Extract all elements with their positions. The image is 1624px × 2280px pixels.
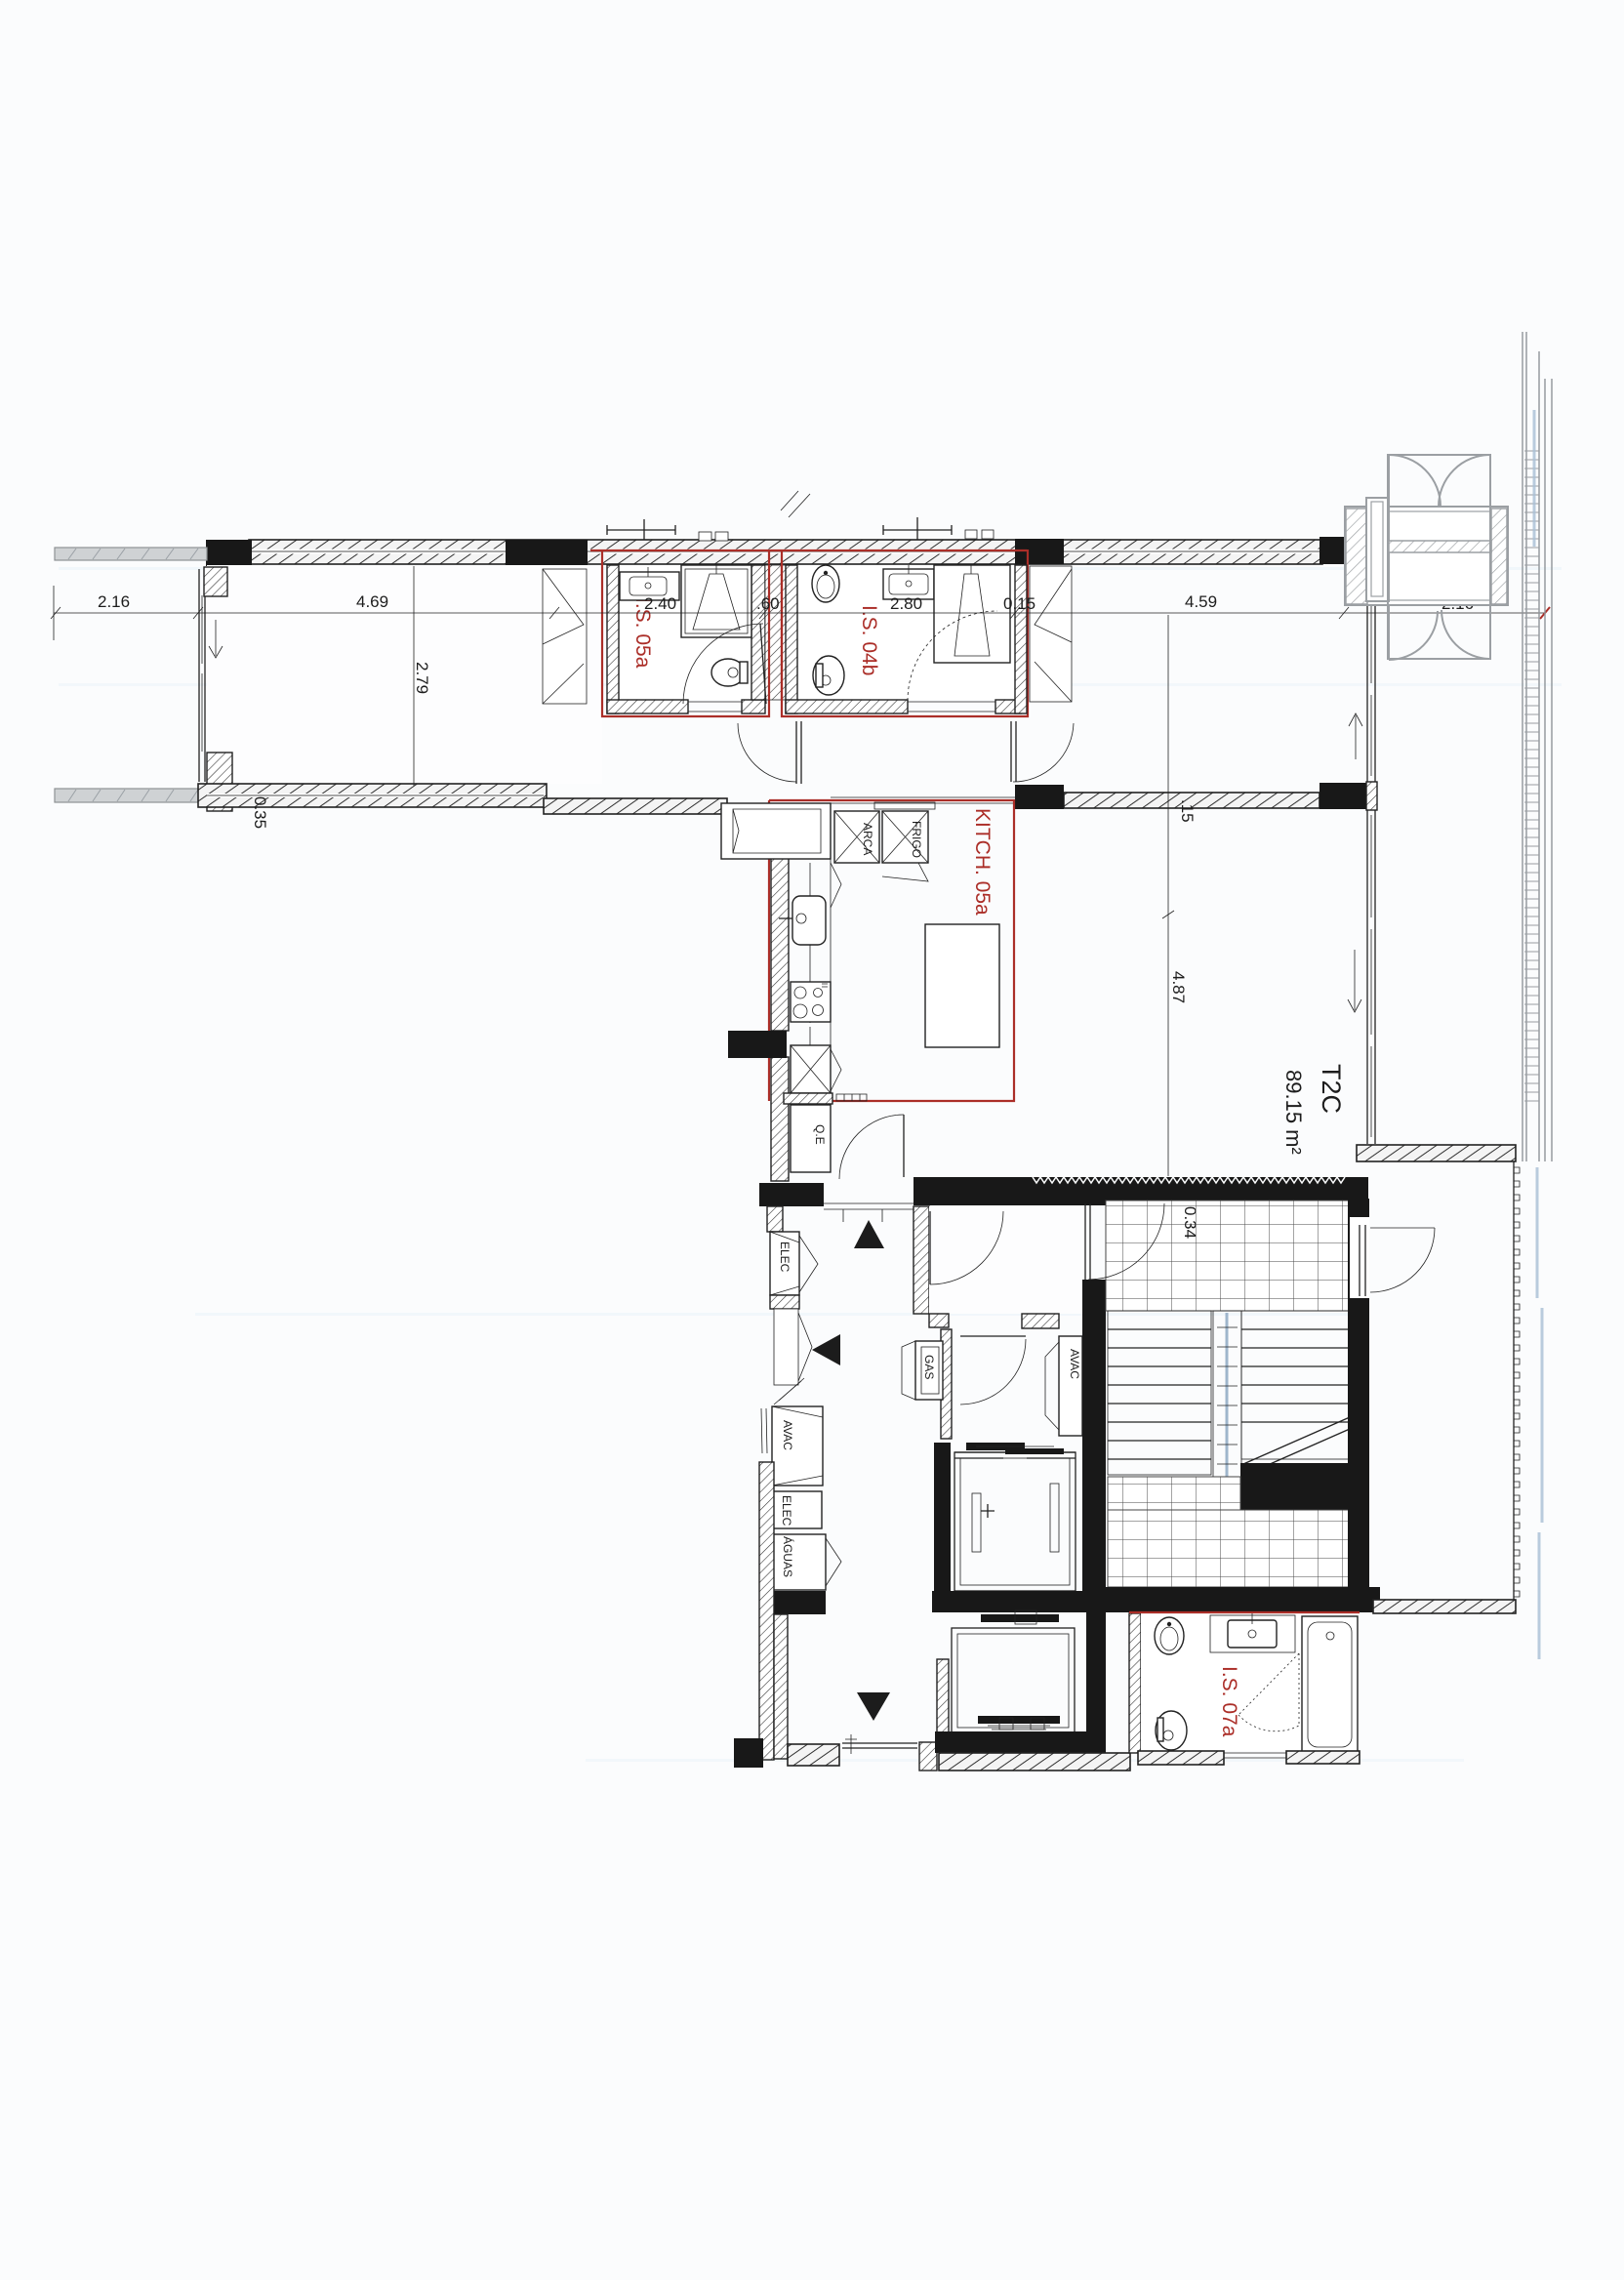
svg-text:.60: .60	[756, 594, 780, 613]
svg-text:AVAC: AVAC	[781, 1420, 794, 1450]
svg-text:2.40: 2.40	[644, 594, 676, 613]
svg-text:4.59: 4.59	[1185, 592, 1217, 611]
svg-text:2.79: 2.79	[413, 662, 431, 694]
svg-text:KITCH. 05a: KITCH. 05a	[971, 808, 994, 916]
svg-text:I.S. 04b: I.S. 04b	[858, 605, 880, 675]
svg-text:Q.E: Q.E	[813, 1124, 827, 1145]
svg-text:AVAC: AVAC	[1068, 1349, 1081, 1379]
svg-text:4.69: 4.69	[356, 592, 388, 611]
svg-text:GAS: GAS	[922, 1355, 936, 1379]
svg-text:.15: .15	[1178, 799, 1197, 823]
svg-text:ELEC: ELEC	[778, 1242, 792, 1273]
svg-text:T2C: T2C	[1317, 1064, 1346, 1114]
svg-text:ELEC: ELEC	[780, 1495, 793, 1527]
svg-text:4.87: 4.87	[1169, 971, 1188, 1003]
svg-text:I.S. 07a: I.S. 07a	[1218, 1666, 1240, 1737]
svg-text:0.35: 0.35	[251, 796, 269, 829]
svg-text:2.80: 2.80	[890, 594, 922, 613]
svg-text:2.16: 2.16	[98, 592, 130, 611]
svg-text:ARCA: ARCA	[861, 823, 874, 855]
svg-text:0.34: 0.34	[1181, 1206, 1199, 1239]
svg-text:FRIGO: FRIGO	[910, 821, 923, 858]
svg-text:0.15: 0.15	[1003, 594, 1035, 613]
svg-text:89.15 m²: 89.15 m²	[1281, 1070, 1306, 1155]
svg-text:ÁGUAS: ÁGUAS	[781, 1536, 795, 1577]
